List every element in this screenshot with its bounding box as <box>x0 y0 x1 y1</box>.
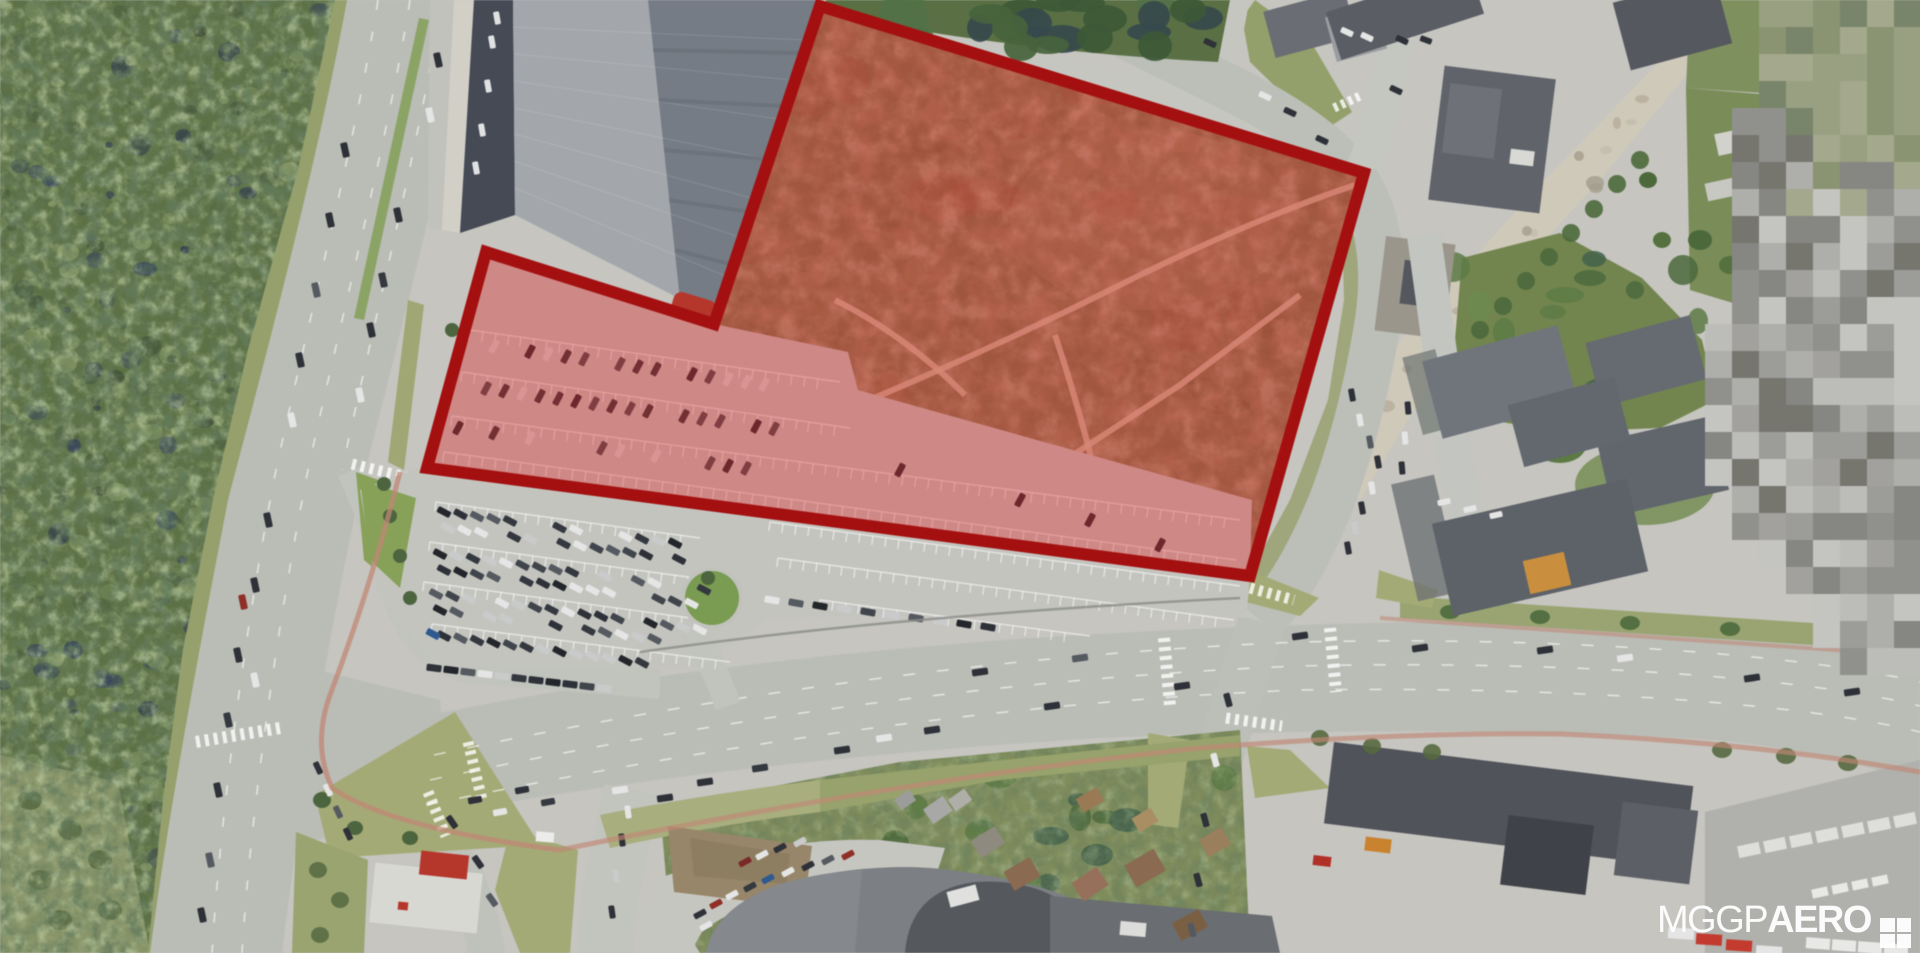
svg-text:MGGPAERO: MGGPAERO <box>1657 899 1871 941</box>
